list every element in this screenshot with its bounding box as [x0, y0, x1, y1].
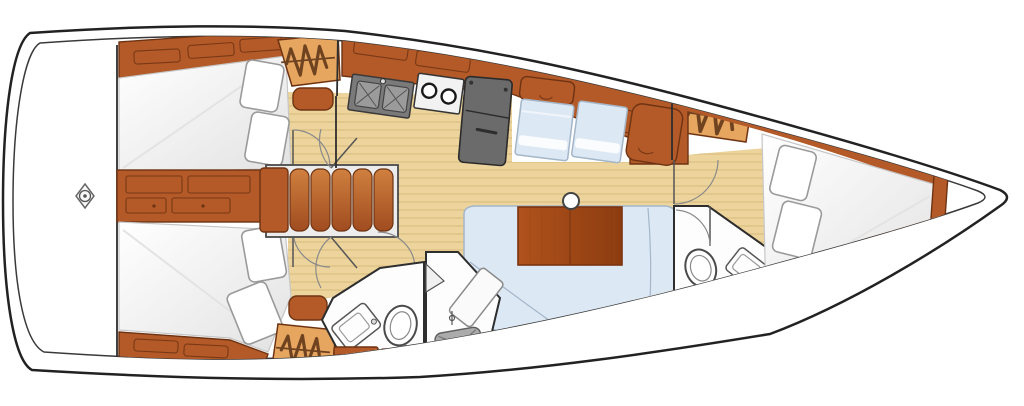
settee-starboard-cushion [515, 99, 574, 161]
side-cabinet [625, 102, 684, 166]
floor-plan-svg [0, 0, 1024, 406]
refrigerator [458, 76, 512, 166]
mast-post [563, 193, 579, 209]
burner-icon [421, 83, 437, 99]
step-tread [353, 169, 372, 231]
stove [414, 73, 464, 114]
step-tread [332, 169, 351, 231]
faucet-icon [380, 78, 386, 84]
bench-seat [289, 296, 327, 320]
step-tread [374, 169, 393, 231]
saloon-table [518, 207, 622, 265]
burner-icon [441, 89, 457, 105]
step-tread [311, 169, 330, 231]
pillow [239, 59, 285, 113]
galley-sink [348, 74, 414, 118]
settee-starboard-cushion [571, 101, 627, 163]
engine-compartment [117, 170, 279, 222]
bench-seat [293, 88, 333, 110]
step-tread [290, 169, 309, 231]
boat-floor-plan [0, 0, 1024, 406]
pillow [244, 111, 290, 167]
